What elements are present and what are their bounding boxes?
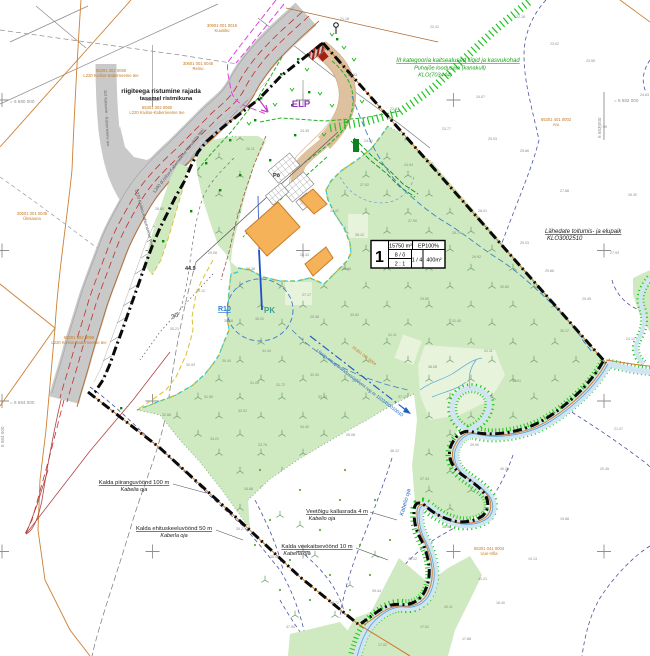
svg-text:23.02: 23.02 <box>550 42 559 46</box>
svg-text:Aru: Aru <box>553 122 560 127</box>
svg-text:38.50: 38.50 <box>442 525 451 529</box>
svg-text:19.13: 19.13 <box>528 557 537 561</box>
svg-text:L220 Kiviloo-Kaberneeme tee: L220 Kiviloo-Kaberneeme tee <box>83 73 139 78</box>
svg-text:III kategooria kaitsealused li: III kategooria kaitsealused liigid ja ka… <box>396 58 520 64</box>
svg-text:31.40: 31.40 <box>452 319 461 323</box>
svg-text:31.05: 31.05 <box>250 381 259 385</box>
svg-text:28.38: 28.38 <box>246 267 255 271</box>
svg-text:23.55: 23.55 <box>586 59 595 63</box>
svg-text:24.63: 24.63 <box>640 93 649 97</box>
svg-text:Kalda ehituskeeluvöönd 50 m: Kalda ehituskeeluvöönd 50 m <box>136 526 212 532</box>
svg-text:PK: PK <box>264 306 275 315</box>
svg-text:tasemel ristmikuna: tasemel ristmikuna <box>140 96 193 102</box>
svg-text:27.52: 27.52 <box>360 183 369 187</box>
svg-text:40.28: 40.28 <box>500 467 509 471</box>
svg-text:32.88: 32.88 <box>162 413 171 417</box>
svg-text:24.07: 24.07 <box>476 95 485 99</box>
svg-text:31.11: 31.11 <box>388 333 397 337</box>
svg-text:30.44: 30.44 <box>222 359 231 363</box>
svg-text:38.72: 38.72 <box>330 601 339 605</box>
svg-text:Kaberla oja: Kaberla oja <box>283 551 310 557</box>
svg-text:ELP: ELP <box>292 99 311 110</box>
svg-text:30.80: 30.80 <box>500 285 509 289</box>
svg-text:27.90: 27.90 <box>408 219 417 223</box>
svg-text:33.76: 33.76 <box>258 443 267 447</box>
svg-text:31.50: 31.50 <box>204 395 213 399</box>
svg-text:23.77: 23.77 <box>442 127 451 131</box>
svg-text:37.17: 37.17 <box>398 395 407 399</box>
svg-text:KLO3002510: KLO3002510 <box>547 236 583 242</box>
svg-text:28.80: 28.80 <box>155 207 164 211</box>
svg-text:22.41: 22.41 <box>430 25 439 29</box>
svg-text:2 : 1: 2 : 1 <box>395 262 406 268</box>
svg-text:27.17: 27.17 <box>302 293 311 297</box>
svg-text:26.11: 26.11 <box>246 147 255 151</box>
svg-text:33.02: 33.02 <box>238 409 247 413</box>
svg-text:27.05: 27.05 <box>598 125 607 129</box>
svg-text:36.12: 36.12 <box>390 449 399 453</box>
svg-text:27.88: 27.88 <box>560 189 569 193</box>
svg-text:40.11: 40.11 <box>444 605 453 609</box>
svg-text:39.02: 39.02 <box>408 557 417 561</box>
svg-text:Lähedate toitumis- ja elupaik: Lähedate toitumis- ja elupaik <box>545 229 622 235</box>
svg-text:37.33: 37.33 <box>420 477 429 481</box>
svg-text:41.11: 41.11 <box>484 349 493 353</box>
svg-text:28.12: 28.12 <box>355 233 364 237</box>
svg-text:riigiteega ristumine rajada: riigiteega ristumine rajada <box>121 88 201 95</box>
svg-text:Põ: Põ <box>273 173 281 179</box>
svg-text:1: 1 <box>375 249 384 266</box>
svg-text:34.88: 34.88 <box>244 487 253 491</box>
svg-text:27.93: 27.93 <box>610 251 619 255</box>
svg-text:34.40: 34.40 <box>300 425 309 429</box>
svg-text:30.93: 30.93 <box>186 363 195 367</box>
svg-text:30.17: 30.17 <box>560 329 569 333</box>
svg-text:18.40: 18.40 <box>496 601 505 605</box>
svg-text:21.93: 21.93 <box>348 73 357 77</box>
svg-text:29.03: 29.03 <box>520 241 529 245</box>
svg-text:= 6 584 000: = 6 584 000 <box>10 400 35 405</box>
svg-text:38.08: 38.08 <box>428 365 437 369</box>
svg-text:Puhajõe loodusala (kanakull): Puhajõe loodusala (kanakull) <box>414 66 486 72</box>
svg-text:24.12: 24.12 <box>626 337 635 341</box>
svg-text:24.21: 24.21 <box>364 139 373 143</box>
svg-text:17.88: 17.88 <box>462 637 471 641</box>
svg-text:24.35: 24.35 <box>300 129 309 133</box>
svg-text:15750 m²: 15750 m² <box>389 244 412 250</box>
svg-text:34.21: 34.21 <box>210 437 219 441</box>
svg-text:L220 Kiviloo-Kaberneeme tee: L220 Kiviloo-Kaberneeme tee <box>51 340 107 345</box>
svg-text:39.44: 39.44 <box>372 589 381 593</box>
svg-text:37.90: 37.90 <box>286 625 295 629</box>
svg-text:Kalda piiranguvöönd 100 m: Kalda piiranguvöönd 100 m <box>99 480 170 486</box>
svg-text:36.02: 36.02 <box>270 555 279 559</box>
svg-text:Kalda veekaitsevöönd 10 m: Kalda veekaitsevöönd 10 m <box>281 544 352 550</box>
svg-text:17.02: 17.02 <box>378 643 387 647</box>
svg-text:29.80: 29.80 <box>420 297 429 301</box>
svg-text:30.18: 30.18 <box>224 319 233 323</box>
svg-text:44.9: 44.9 <box>185 266 196 272</box>
svg-text:32.05: 32.05 <box>310 373 319 377</box>
svg-text:22.87: 22.87 <box>390 107 399 111</box>
svg-text:28.43: 28.43 <box>300 253 309 257</box>
svg-text:L220 Kiviloo-Kaberneeme tee: L220 Kiviloo-Kaberneeme tee <box>129 110 185 115</box>
svg-text:Uue-Villa: Uue-Villa <box>481 551 499 556</box>
svg-text:KLO(703444): KLO(703444) <box>418 73 452 79</box>
svg-text:35.08: 35.08 <box>346 433 355 437</box>
svg-text:28.88: 28.88 <box>342 267 351 271</box>
svg-text:30.62: 30.62 <box>350 313 359 317</box>
svg-text:Reinu: Reinu <box>193 66 205 71</box>
svg-text:29.45: 29.45 <box>582 297 591 301</box>
svg-text:21.18: 21.18 <box>340 17 349 21</box>
svg-text:29.36: 29.36 <box>310 315 319 319</box>
svg-text:EP100%: EP100% <box>418 244 439 250</box>
svg-text:28.76: 28.76 <box>452 231 461 235</box>
svg-text:21.07: 21.07 <box>614 427 623 431</box>
svg-text:22.18: 22.18 <box>516 15 525 19</box>
svg-text:32.40: 32.40 <box>318 395 327 399</box>
svg-text:400m²: 400m² <box>426 258 441 264</box>
svg-text:29.12: 29.12 <box>196 289 205 293</box>
svg-text:Ülesauna: Ülesauna <box>23 216 41 221</box>
svg-text:42.01: 42.01 <box>512 379 521 383</box>
svg-text:Kaberla oja: Kaberla oja <box>160 533 187 539</box>
svg-text:31.44: 31.44 <box>262 349 271 353</box>
svg-text:Kabelia oja: Kabelia oja <box>121 487 148 493</box>
svg-text:17.51: 17.51 <box>420 625 429 629</box>
svg-text:20.45: 20.45 <box>600 467 609 471</box>
svg-text:31.72: 31.72 <box>276 383 285 387</box>
svg-text:25.03: 25.03 <box>488 137 497 141</box>
svg-text:25.66: 25.66 <box>520 149 529 153</box>
svg-text:29.92: 29.92 <box>472 255 481 259</box>
svg-text:19.88: 19.88 <box>560 517 569 521</box>
svg-text:= 6 580 000: = 6 580 000 <box>10 99 35 104</box>
svg-text:29.86: 29.86 <box>545 269 554 273</box>
svg-text:Veetõigu kallasrada 4 m: Veetõigu kallasrada 4 m <box>306 509 368 515</box>
svg-text:28.01: 28.01 <box>478 209 487 213</box>
svg-text:26.30: 26.30 <box>628 193 637 197</box>
svg-text:29.08: 29.08 <box>208 251 217 255</box>
svg-text:26.47: 26.47 <box>330 209 339 213</box>
svg-text:R10: R10 <box>218 306 231 313</box>
svg-text:41.21: 41.21 <box>478 577 487 581</box>
svg-text:= 6 582 000: = 6 582 000 <box>614 98 639 103</box>
svg-text:24.94: 24.94 <box>404 163 413 167</box>
svg-text:Kuusiku: Kuusiku <box>215 28 231 33</box>
svg-text:35.27: 35.27 <box>236 527 245 531</box>
svg-text:33.17: 33.17 <box>352 379 361 383</box>
svg-text:Kabelio oja: Kabelio oja <box>309 516 336 522</box>
svg-text:36.02: 36.02 <box>255 317 264 321</box>
svg-text:8 / õ: 8 / õ <box>395 253 406 259</box>
svg-text:6 584 000: 6 584 000 <box>0 426 5 447</box>
svg-text:1 / 4: 1 / 4 <box>412 258 423 264</box>
svg-text:30.21: 30.21 <box>170 327 179 331</box>
svg-text:39.90: 39.90 <box>470 443 479 447</box>
